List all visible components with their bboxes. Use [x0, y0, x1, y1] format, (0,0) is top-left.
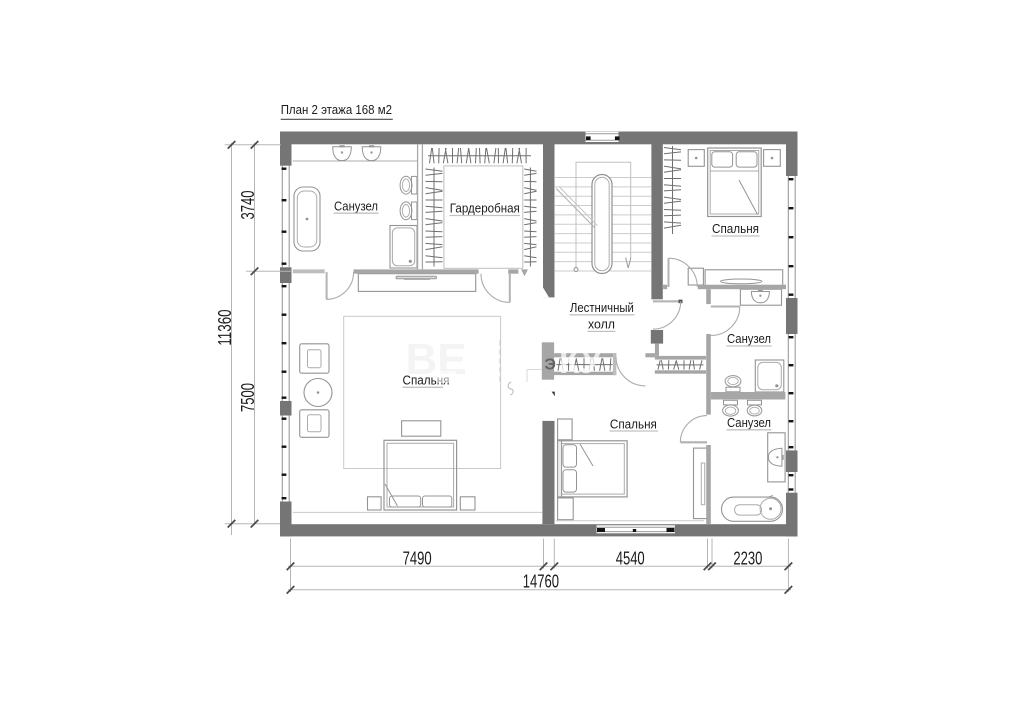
- svg-text:4540: 4540: [616, 548, 645, 568]
- svg-text:Санузел: Санузел: [727, 415, 771, 430]
- svg-text:Санузел: Санузел: [334, 199, 378, 214]
- svg-text:7490: 7490: [403, 548, 432, 568]
- svg-text:Санузел: Санузел: [727, 331, 771, 346]
- svg-text:3740: 3740: [238, 190, 258, 219]
- svg-text:14760: 14760: [523, 572, 559, 592]
- svg-text:7500: 7500: [238, 383, 258, 412]
- svg-text:Спальня: Спальня: [712, 221, 759, 236]
- svg-text:Гардеробная: Гардеробная: [450, 201, 520, 216]
- svg-text:Э: Э: [545, 357, 556, 374]
- svg-text:КУ: КУ: [559, 343, 603, 381]
- svg-text:Лестничный: Лестничный: [570, 300, 634, 315]
- svg-text:2230: 2230: [733, 548, 762, 568]
- svg-text:11360: 11360: [215, 309, 235, 345]
- svg-text:Спальня: Спальня: [610, 416, 657, 431]
- svg-text:холл: холл: [588, 317, 615, 332]
- svg-text:План 2 этажа 168 м2: План 2 этажа 168 м2: [281, 102, 392, 117]
